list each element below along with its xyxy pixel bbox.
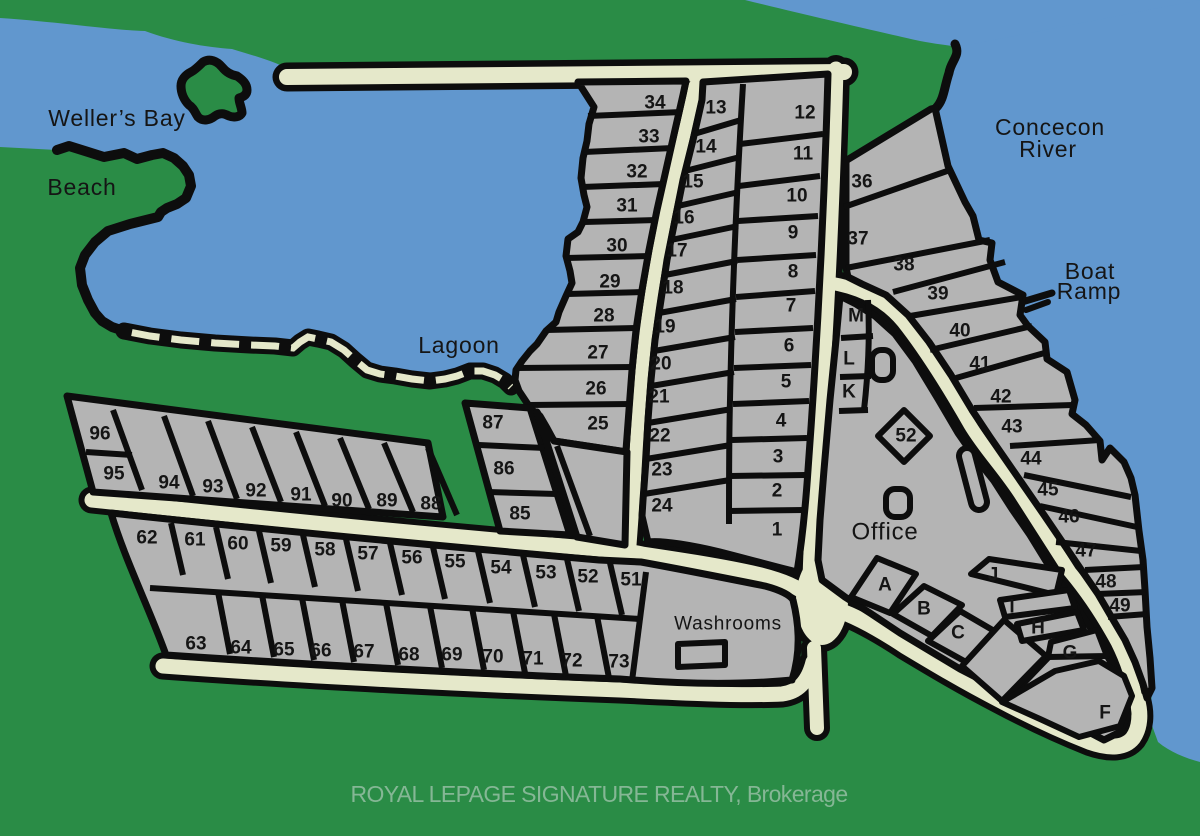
svg-text:Lagoon: Lagoon [418, 332, 500, 358]
svg-text:61: 61 [184, 530, 206, 551]
svg-text:A: A [878, 575, 892, 596]
svg-text:21: 21 [648, 387, 670, 408]
svg-text:88: 88 [420, 494, 441, 515]
svg-text:3: 3 [773, 447, 784, 468]
svg-text:47: 47 [1075, 541, 1096, 562]
svg-text:ROYAL LEPAGE SIGNATURE REALTY,: ROYAL LEPAGE SIGNATURE REALTY, Brokerage [350, 781, 847, 807]
svg-text:River: River [1019, 136, 1077, 162]
svg-text:71: 71 [522, 649, 544, 670]
svg-text:I: I [1009, 597, 1014, 618]
svg-text:55: 55 [444, 552, 466, 573]
svg-text:M: M [848, 306, 864, 327]
svg-text:9: 9 [788, 223, 799, 244]
svg-text:93: 93 [202, 477, 223, 498]
svg-text:G: G [1063, 643, 1078, 664]
svg-text:59: 59 [270, 536, 291, 557]
svg-text:19: 19 [654, 317, 675, 338]
svg-text:40: 40 [949, 321, 970, 342]
svg-text:12: 12 [794, 103, 815, 124]
svg-text:15: 15 [682, 172, 704, 193]
svg-text:25: 25 [587, 414, 609, 435]
svg-text:51: 51 [620, 570, 642, 591]
svg-text:63: 63 [185, 634, 206, 655]
svg-text:7: 7 [786, 296, 797, 317]
svg-text:68: 68 [398, 645, 419, 666]
svg-text:43: 43 [1001, 417, 1022, 438]
svg-text:58: 58 [314, 540, 335, 561]
svg-text:33: 33 [638, 127, 659, 148]
svg-text:56: 56 [401, 548, 422, 569]
svg-text:60: 60 [227, 534, 248, 555]
svg-text:72: 72 [561, 651, 582, 672]
svg-text:92: 92 [245, 481, 266, 502]
svg-text:54: 54 [490, 558, 512, 579]
svg-text:C: C [951, 623, 965, 644]
svg-text:31: 31 [616, 196, 638, 217]
svg-text:H: H [1031, 618, 1045, 639]
svg-text:Washrooms: Washrooms [674, 614, 782, 635]
svg-text:46: 46 [1058, 507, 1079, 528]
svg-text:91: 91 [290, 485, 312, 506]
svg-text:89: 89 [376, 491, 397, 512]
svg-text:66: 66 [310, 641, 331, 662]
svg-text:39: 39 [927, 284, 948, 305]
svg-text:28: 28 [593, 306, 614, 327]
svg-text:L: L [843, 349, 855, 370]
svg-text:87: 87 [482, 413, 503, 434]
svg-text:85: 85 [509, 504, 531, 525]
svg-text:44: 44 [1020, 449, 1042, 470]
svg-text:67: 67 [353, 642, 374, 663]
svg-text:10: 10 [786, 186, 807, 207]
svg-text:13: 13 [705, 98, 726, 119]
svg-text:38: 38 [893, 255, 914, 276]
svg-text:23: 23 [651, 460, 672, 481]
svg-text:32: 32 [626, 162, 647, 183]
svg-text:57: 57 [357, 544, 378, 565]
svg-text:42: 42 [990, 387, 1011, 408]
svg-text:95: 95 [103, 464, 125, 485]
svg-text:20: 20 [650, 354, 671, 375]
svg-text:64: 64 [230, 638, 252, 659]
svg-text:8: 8 [788, 262, 799, 283]
svg-text:53: 53 [535, 563, 556, 584]
svg-text:Office: Office [851, 519, 918, 546]
svg-text:34: 34 [644, 93, 666, 114]
svg-text:Beach: Beach [47, 174, 116, 200]
svg-text:29: 29 [599, 272, 620, 293]
svg-text:69: 69 [441, 645, 462, 666]
svg-text:24: 24 [651, 496, 673, 517]
svg-text:Ramp: Ramp [1057, 278, 1122, 304]
svg-text:Weller’s Bay: Weller’s Bay [48, 105, 185, 131]
svg-text:52: 52 [895, 426, 916, 447]
svg-text:26: 26 [585, 379, 606, 400]
svg-text:4: 4 [776, 411, 787, 432]
svg-text:70: 70 [482, 647, 503, 668]
svg-text:90: 90 [331, 491, 352, 512]
svg-text:11: 11 [793, 144, 814, 165]
svg-text:J: J [988, 565, 999, 586]
svg-text:22: 22 [649, 426, 670, 447]
svg-text:65: 65 [273, 640, 295, 661]
svg-text:B: B [917, 599, 931, 620]
svg-text:52: 52 [577, 567, 598, 588]
svg-text:62: 62 [136, 528, 157, 549]
svg-text:14: 14 [695, 137, 717, 158]
svg-text:2: 2 [772, 481, 783, 502]
svg-text:17: 17 [666, 241, 687, 262]
svg-text:5: 5 [781, 372, 792, 393]
svg-text:16: 16 [673, 208, 694, 229]
svg-text:94: 94 [158, 473, 180, 494]
svg-text:30: 30 [606, 236, 627, 257]
svg-text:41: 41 [969, 354, 991, 375]
svg-text:F: F [1099, 703, 1111, 724]
svg-text:37: 37 [847, 229, 868, 250]
svg-text:27: 27 [587, 343, 608, 364]
svg-text:18: 18 [662, 278, 683, 299]
svg-text:45: 45 [1037, 480, 1059, 501]
svg-text:K: K [842, 382, 856, 403]
svg-text:1: 1 [772, 520, 783, 541]
svg-text:36: 36 [851, 172, 872, 193]
svg-text:86: 86 [493, 459, 514, 480]
svg-text:49: 49 [1109, 596, 1130, 617]
svg-text:48: 48 [1095, 572, 1116, 593]
svg-text:73: 73 [608, 652, 629, 673]
svg-text:96: 96 [89, 424, 110, 445]
svg-text:6: 6 [784, 336, 795, 357]
